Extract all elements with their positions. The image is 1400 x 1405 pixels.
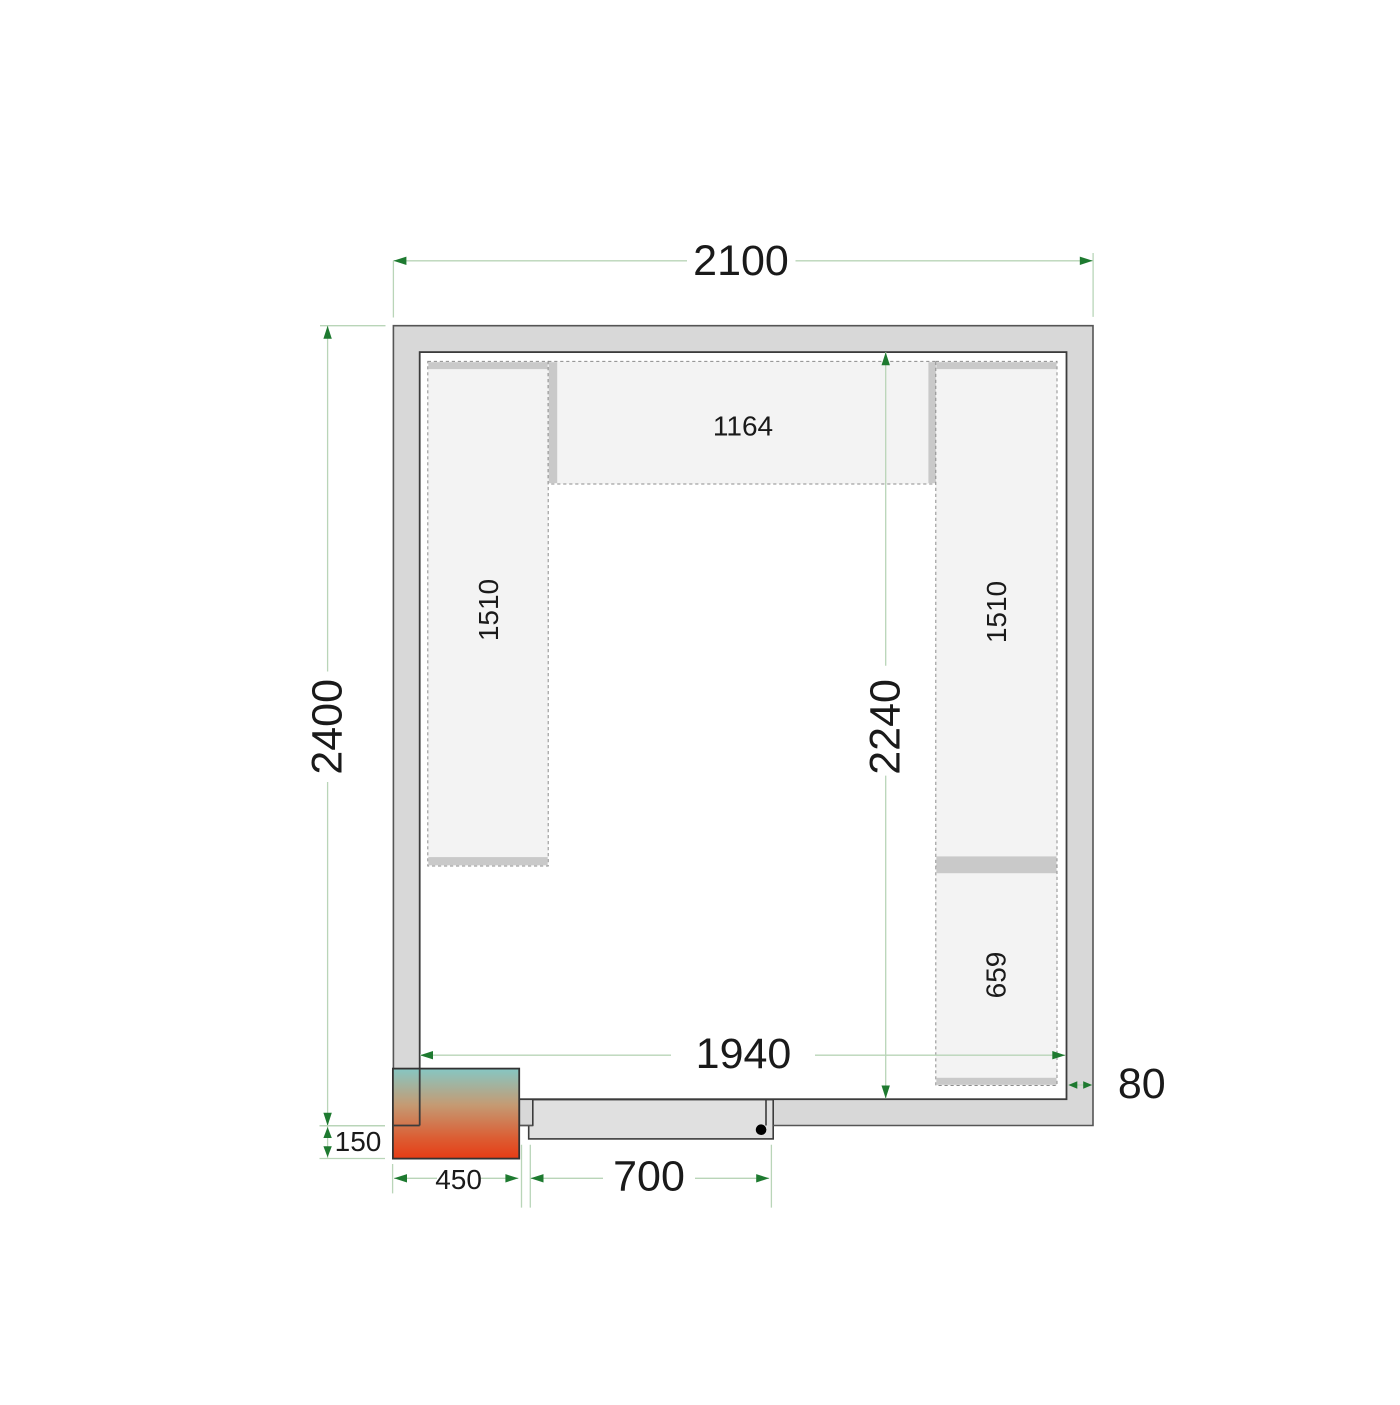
svg-text:700: 700 — [613, 1153, 685, 1201]
svg-text:1510: 1510 — [473, 579, 504, 641]
svg-text:659: 659 — [981, 952, 1012, 999]
svg-text:2240: 2240 — [862, 679, 910, 775]
svg-text:1940: 1940 — [696, 1030, 792, 1078]
svg-text:1164: 1164 — [713, 411, 773, 442]
svg-text:450: 450 — [435, 1164, 482, 1195]
svg-text:2100: 2100 — [693, 237, 789, 285]
svg-text:1510: 1510 — [981, 581, 1012, 643]
svg-text:80: 80 — [1118, 1060, 1166, 1108]
svg-text:150: 150 — [335, 1126, 382, 1157]
svg-text:2400: 2400 — [304, 679, 352, 775]
